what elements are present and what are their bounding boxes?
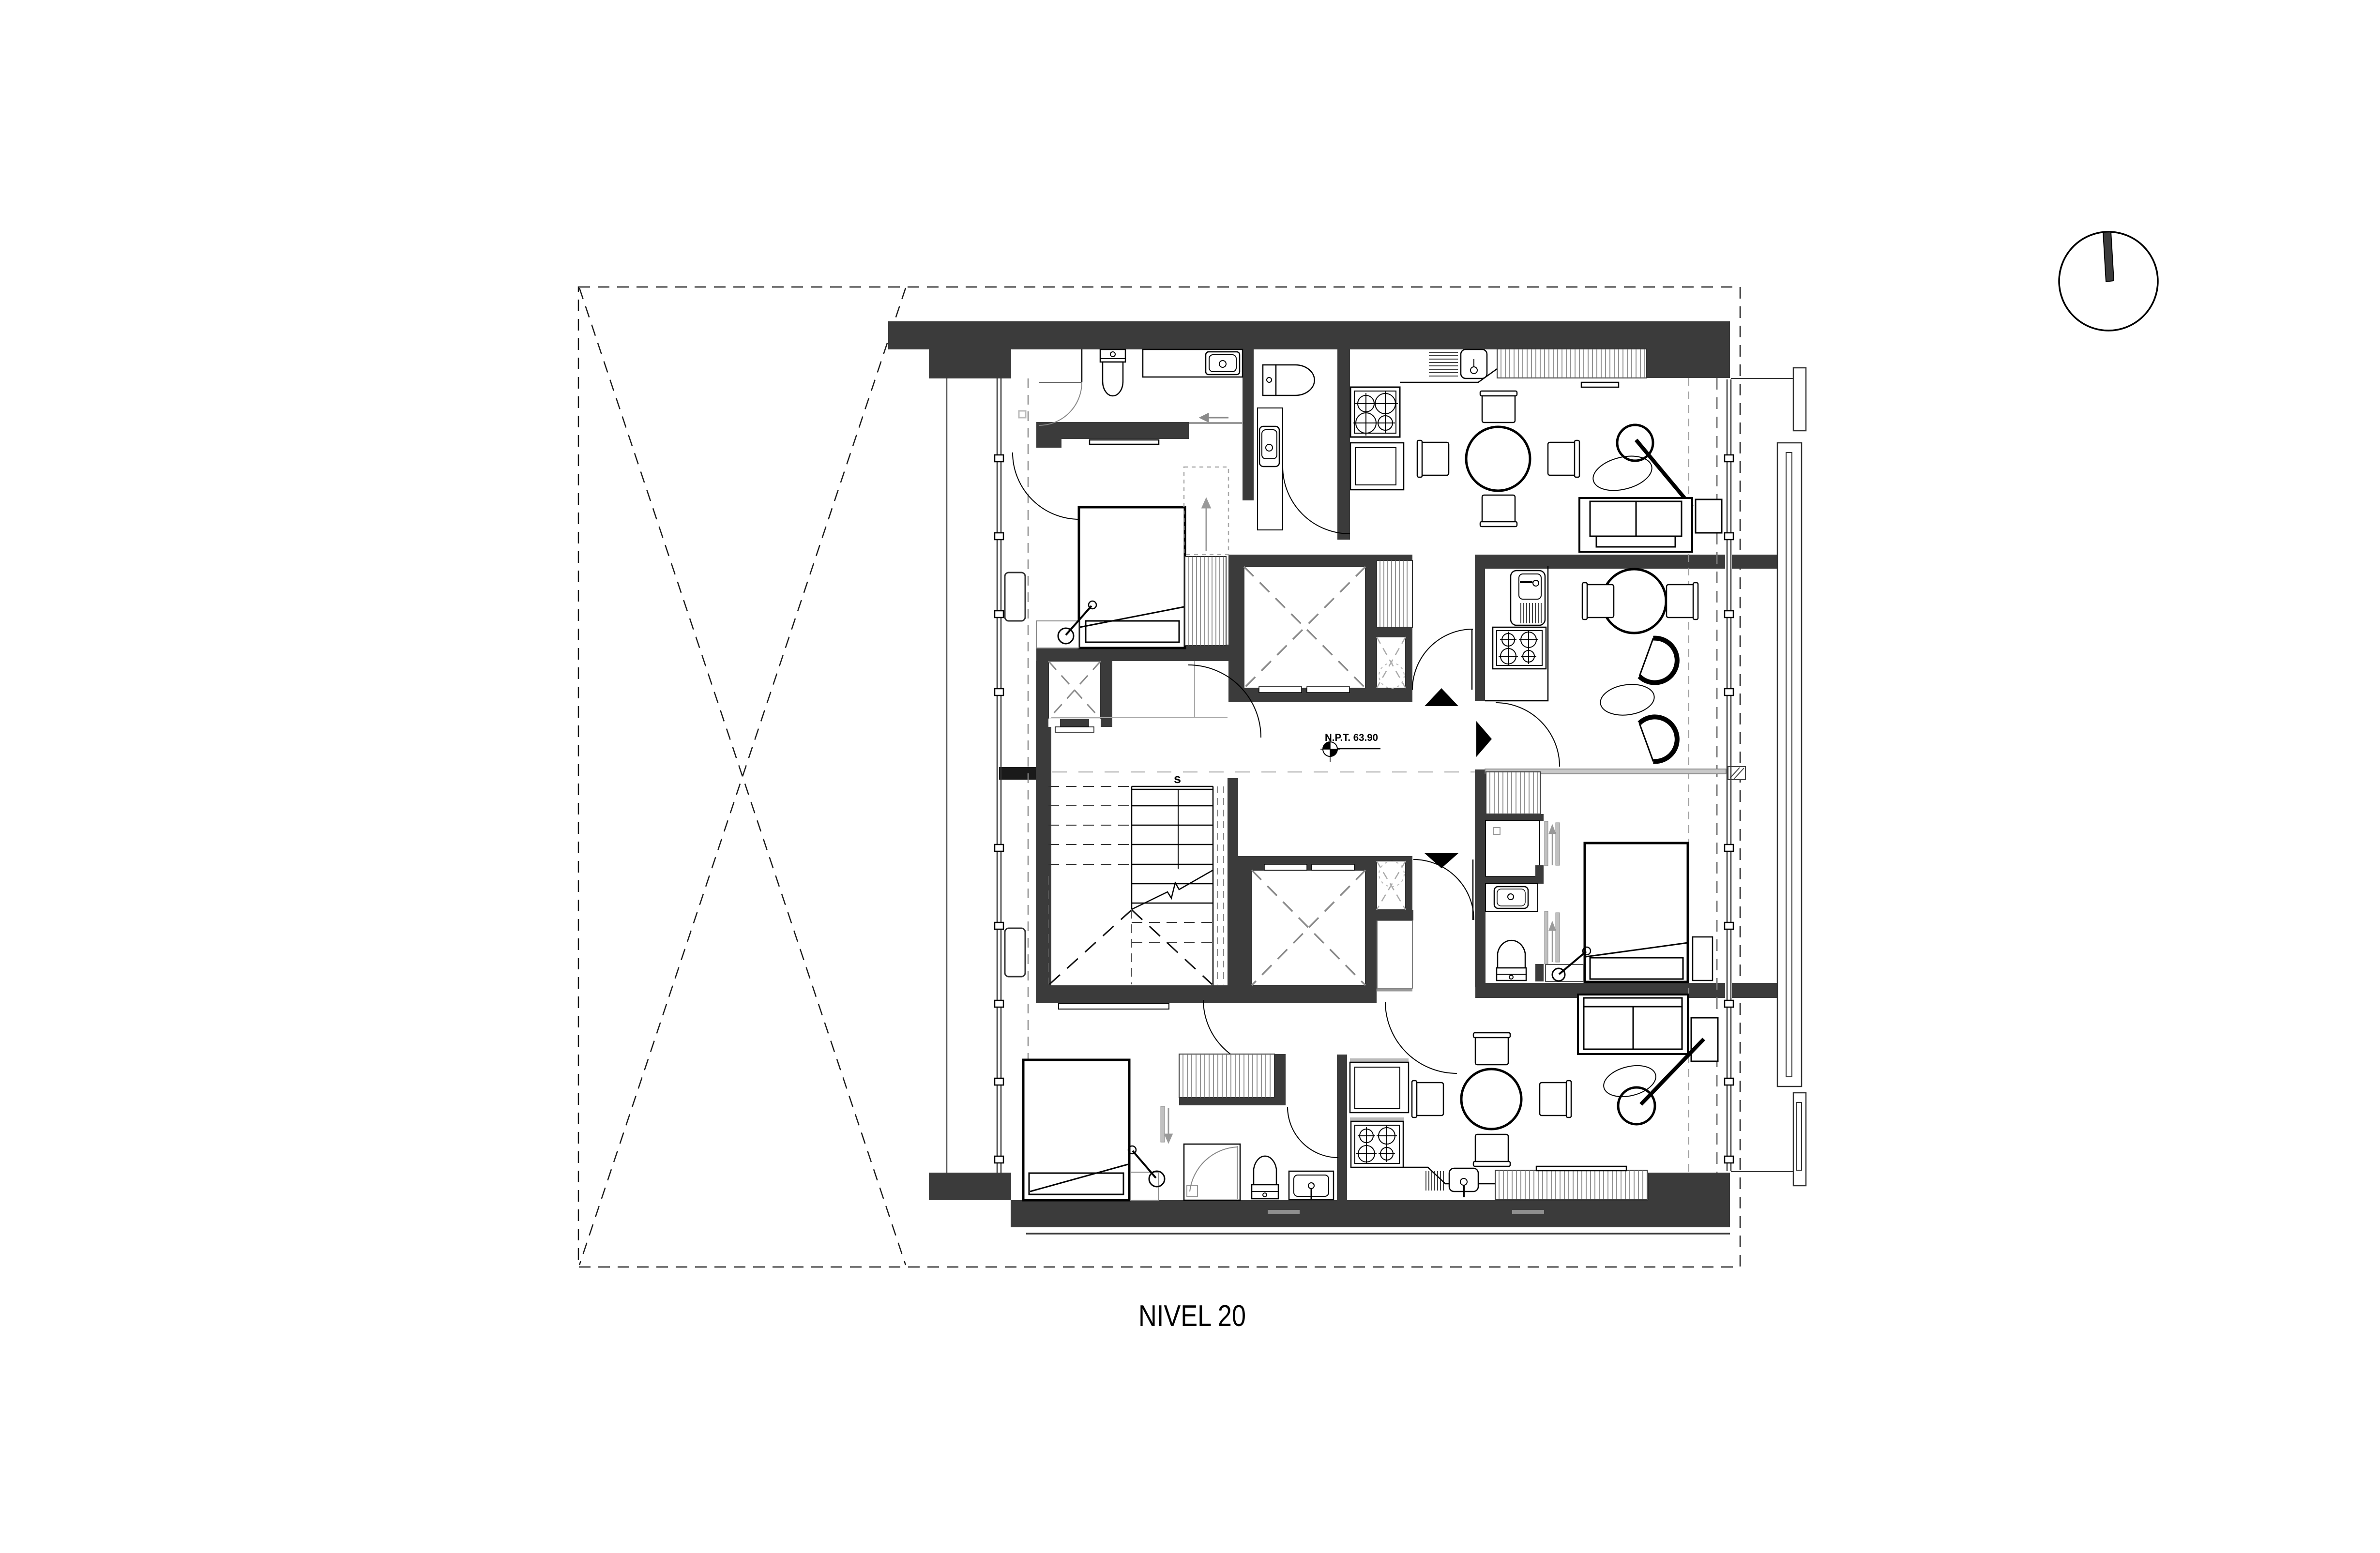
svg-text:NIVEL 20: NIVEL 20 xyxy=(1138,1299,1246,1333)
svg-text:N.P.T. 63.90: N.P.T. 63.90 xyxy=(1325,732,1378,743)
svg-text:s: s xyxy=(1174,771,1181,786)
